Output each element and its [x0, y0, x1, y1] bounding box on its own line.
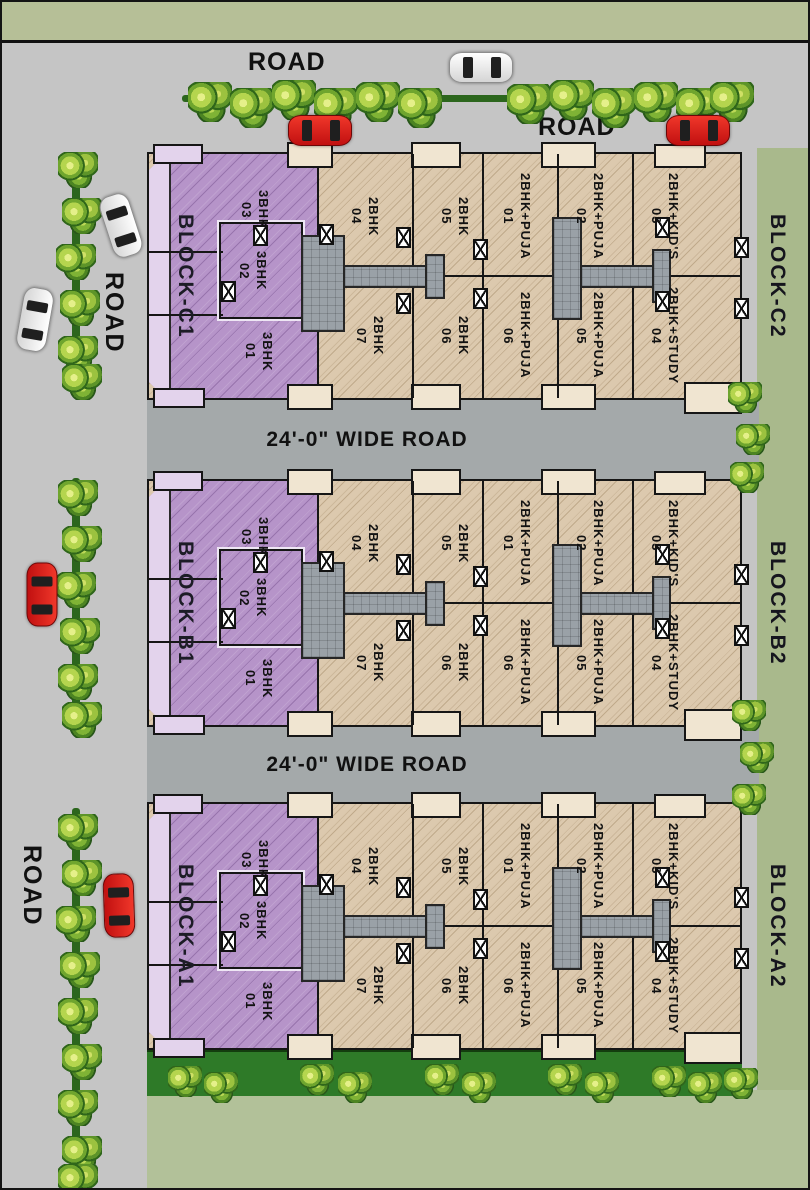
block-left-label: BLOCK-B1 [173, 525, 197, 681]
purple-edge-strip [149, 804, 171, 1048]
tree-icon [338, 1072, 372, 1103]
unit-number: 04 [347, 488, 364, 598]
tree-icon [188, 82, 232, 122]
unit-number: 05 [437, 811, 454, 921]
unit-number: 04 [647, 608, 664, 718]
white-car-icon [96, 190, 145, 260]
unit-label: 2BHK 05 [437, 811, 471, 921]
lift-icon [734, 948, 749, 969]
lift-icon [734, 625, 749, 646]
lift-icon [396, 293, 411, 314]
unit-number: 01 [499, 488, 516, 598]
unit-type: 2BHK+PUJA [589, 161, 606, 271]
red-car-icon [27, 563, 58, 627]
unit-number: 04 [347, 811, 364, 921]
unit-number: 07 [352, 931, 369, 1041]
unit-number: 01 [241, 310, 258, 393]
lift-icon [221, 608, 236, 629]
unit-label: 2BHK+PUJA 06 [499, 931, 533, 1041]
tree-icon [724, 1068, 758, 1099]
unit-label: 2BHK 05 [437, 488, 471, 598]
unit-type: 2BHK [369, 281, 386, 391]
tree-icon [356, 82, 400, 122]
unit-label: 2BHK+PUJA 02 [572, 488, 606, 598]
tree-icon [300, 1064, 334, 1095]
unit-label: 2BHK+STUDY 04 [647, 931, 681, 1041]
unit-type: 2BHK+KID'S [664, 161, 681, 271]
tree-icon [56, 572, 96, 608]
tree-icon [58, 664, 98, 700]
purple-block: BLOCK-C1 3BHK 03 3BHK 02 3BHK 01 [149, 154, 319, 398]
lift-icon [396, 877, 411, 898]
lift-icon [221, 931, 236, 952]
unit-number: 01 [499, 811, 516, 921]
unit-label: 2BHK+PUJA 05 [572, 931, 606, 1041]
tree-icon [740, 742, 774, 773]
unit-number: 02 [235, 227, 252, 315]
block-left-label: BLOCK-C1 [173, 198, 197, 354]
unit-number: 06 [499, 281, 516, 391]
tree-icon [230, 88, 274, 128]
tree-icon [548, 1064, 582, 1095]
white-car-icon [14, 285, 56, 353]
balcony [684, 1032, 742, 1064]
tree-icon [507, 84, 551, 124]
tree-icon [58, 480, 98, 516]
bottom-green-area [147, 1090, 810, 1190]
purple-block: BLOCK-B1 3BHK 03 3BHK 02 3BHK 01 [149, 481, 319, 725]
lift-icon [319, 224, 334, 245]
unit-label: 2BHK+PUJA 01 [499, 161, 533, 271]
lift-icon [473, 615, 488, 636]
wide-road-upper: 24'-0" WIDE ROAD [147, 400, 759, 479]
tree-icon [56, 244, 96, 280]
tree-icon [168, 1066, 202, 1097]
block-row: BLOCK-B1 3BHK 03 3BHK 02 3BHK 01 [147, 479, 810, 727]
tree-icon [462, 1072, 496, 1103]
unit-label: 3BHK 01 [241, 960, 275, 1043]
unit-number: 02 [572, 161, 589, 271]
unit-type: 2BHK+PUJA [516, 811, 533, 921]
tree-icon [62, 702, 102, 738]
unit-label: 2BHK+KID'S 03 [647, 161, 681, 271]
tree-icon [62, 198, 102, 234]
unit-number: 04 [347, 161, 364, 271]
road-label-top-1: ROAD [248, 48, 326, 77]
balcony [153, 1038, 205, 1058]
unit-label: 2BHK 06 [437, 608, 471, 718]
unit-number: 05 [572, 931, 589, 1041]
unit-type: 2BHK [454, 161, 471, 271]
building-footprint: BLOCK-A1 3BHK 03 3BHK 02 3BHK 01 [147, 802, 742, 1050]
site-plan: 24'-0" WIDE ROAD 24'-0" WIDE ROAD ROAD R… [0, 0, 810, 1190]
tree-icon [60, 290, 100, 326]
tree-icon [58, 998, 98, 1034]
lift-icon [473, 288, 488, 309]
block-right-label: BLOCK-C2 [765, 182, 789, 370]
balcony [153, 471, 203, 491]
lift-icon [734, 298, 749, 319]
tree-icon [62, 860, 102, 896]
unit-type: 2BHK+STUDY [664, 281, 681, 391]
purple-edge-strip [149, 481, 171, 725]
unit-type: 2BHK [369, 931, 386, 1041]
tree-icon [56, 906, 96, 942]
unit-type: 3BHK [258, 637, 275, 720]
unit-label: 2BHK+PUJA 06 [499, 281, 533, 391]
stair-core [301, 885, 345, 983]
lift-icon [319, 551, 334, 572]
unit-type: 2BHK [454, 931, 471, 1041]
lift-icon [473, 938, 488, 959]
unit-type: 2BHK [454, 608, 471, 718]
unit-number: 06 [499, 931, 516, 1041]
block-left-label: BLOCK-A1 [173, 848, 197, 1004]
unit-number: 01 [241, 960, 258, 1043]
tree-icon [62, 1044, 102, 1080]
block-row: BLOCK-A1 3BHK 03 3BHK 02 3BHK 01 [147, 802, 810, 1050]
tree-icon [58, 152, 98, 188]
tree-icon [732, 700, 766, 731]
unit-number: 03 [647, 161, 664, 271]
unit-number: 07 [352, 281, 369, 391]
unit-label: 2BHK+PUJA 05 [572, 608, 606, 718]
unit-type: 2BHK+PUJA [589, 281, 606, 391]
unit-number: 03 [647, 488, 664, 598]
stair-core [301, 235, 345, 333]
wide-road-lower: 24'-0" WIDE ROAD [147, 727, 759, 802]
lift-icon [319, 874, 334, 895]
road-label-left-1: ROAD [99, 272, 128, 362]
lift-icon [473, 889, 488, 910]
tree-icon [60, 618, 100, 654]
tree-icon [652, 1066, 686, 1097]
wide-road-label: 24'-0" WIDE ROAD [217, 753, 517, 777]
lift-icon [473, 239, 488, 260]
unit-label: 2BHK+KID'S 03 [647, 811, 681, 921]
unit-number: 02 [572, 488, 589, 598]
balcony [287, 711, 333, 737]
unit-type: 2BHK [364, 811, 381, 921]
unit-label: 2BHK 06 [437, 281, 471, 391]
tree-icon [736, 424, 770, 455]
unit-number: 02 [235, 554, 252, 642]
stair-core [301, 562, 345, 660]
unit-number: 04 [647, 281, 664, 391]
lift-icon [253, 552, 268, 573]
lift-icon [396, 620, 411, 641]
unit-label: 2BHK+STUDY 04 [647, 281, 681, 391]
lift-icon [396, 943, 411, 964]
unit-number: 03 [647, 811, 664, 921]
unit-label: 2BHK 07 [352, 608, 386, 718]
unit-label: 2BHK+PUJA 05 [572, 281, 606, 391]
unit-label: 3BHK 01 [241, 310, 275, 393]
lift-icon [734, 887, 749, 908]
tree-icon [272, 80, 316, 120]
lift-icon [396, 227, 411, 248]
tree-icon [730, 462, 764, 493]
tree-icon [398, 88, 442, 128]
unit-number: 01 [499, 161, 516, 271]
unit-type: 2BHK+PUJA [589, 931, 606, 1041]
balcony [153, 144, 203, 164]
unit-label: 2BHK+PUJA 06 [499, 608, 533, 718]
lift-icon [253, 875, 268, 896]
unit-label: 2BHK+PUJA 02 [572, 161, 606, 271]
tree-icon [62, 364, 102, 400]
unit-label: 3BHK 01 [241, 637, 275, 720]
unit-type: 2BHK [364, 161, 381, 271]
balcony [153, 794, 203, 814]
unit-type: 3BHK [258, 310, 275, 393]
unit-number: 05 [437, 161, 454, 271]
tree-icon [688, 1072, 722, 1103]
unit-label: 2BHK+PUJA 02 [572, 811, 606, 921]
tree-icon [62, 526, 102, 562]
tree-icon [728, 382, 762, 413]
unit-type: 2BHK+PUJA [516, 488, 533, 598]
tree-icon [585, 1072, 619, 1103]
unit-number: 06 [437, 931, 454, 1041]
unit-type: 2BHK [454, 811, 471, 921]
tree-icon [58, 1090, 98, 1126]
unit-label: 2BHK 07 [352, 931, 386, 1041]
unit-type: 2BHK+PUJA [589, 811, 606, 921]
unit-label: 2BHK 04 [347, 488, 381, 598]
unit-type: 2BHK+KID'S [664, 811, 681, 921]
unit-number: 06 [437, 608, 454, 718]
tree-icon [60, 952, 100, 988]
unit-number: 01 [241, 637, 258, 720]
unit-type: 2BHK+PUJA [516, 608, 533, 718]
unit-number: 02 [235, 877, 252, 965]
balcony [287, 792, 333, 818]
balcony [287, 1034, 333, 1060]
tree-icon [732, 784, 766, 815]
lift-icon [734, 564, 749, 585]
balcony [153, 388, 205, 408]
unit-number: 05 [572, 281, 589, 391]
unit-type: 2BHK+STUDY [664, 608, 681, 718]
red-car-icon [102, 873, 135, 938]
unit-label: 2BHK 04 [347, 811, 381, 921]
unit-label: 2BHK 05 [437, 161, 471, 271]
block-right-label: BLOCK-B2 [765, 509, 789, 697]
purple-edge-strip [149, 154, 171, 398]
lift-icon [473, 566, 488, 587]
unit-label: 2BHK+KID'S 03 [647, 488, 681, 598]
building-footprint: BLOCK-B1 3BHK 03 3BHK 02 3BHK 01 [147, 479, 742, 727]
unit-type: 2BHK+PUJA [589, 608, 606, 718]
unit-label: 2BHK 06 [437, 931, 471, 1041]
unit-type: 2BHK [369, 608, 386, 718]
block-right-label: BLOCK-A2 [765, 832, 789, 1020]
unit-type: 2BHK+STUDY [664, 931, 681, 1041]
unit-label: 2BHK+STUDY 04 [647, 608, 681, 718]
unit-number: 06 [499, 608, 516, 718]
unit-number: 06 [437, 281, 454, 391]
red-car-icon [666, 115, 730, 146]
block-row: BLOCK-C1 3BHK 03 3BHK 02 3BHK 01 [147, 152, 810, 400]
purple-block: BLOCK-A1 3BHK 03 3BHK 02 3BHK 01 [149, 804, 319, 1048]
unit-type: 2BHK [454, 281, 471, 391]
balcony [287, 469, 333, 495]
unit-type: 2BHK+PUJA [589, 488, 606, 598]
unit-type: 2BHK [454, 488, 471, 598]
road-label-left-2: ROAD [17, 845, 46, 935]
unit-type: 2BHK+KID'S [664, 488, 681, 598]
tree-icon [592, 88, 636, 128]
tree-icon [204, 1072, 238, 1103]
tree-icon [425, 1064, 459, 1095]
balcony [287, 384, 333, 410]
unit-number: 05 [437, 488, 454, 598]
balcony [153, 715, 205, 735]
unit-label: 2BHK 07 [352, 281, 386, 391]
unit-label: 2BHK 04 [347, 161, 381, 271]
tree-icon [58, 1164, 98, 1190]
white-car-icon [449, 52, 513, 83]
unit-number: 04 [647, 931, 664, 1041]
unit-number: 02 [572, 811, 589, 921]
tree-icon [550, 80, 594, 120]
top-green-strip [2, 2, 808, 43]
building-footprint: BLOCK-C1 3BHK 03 3BHK 02 3BHK 01 [147, 152, 742, 400]
unit-type: 2BHK+PUJA [516, 931, 533, 1041]
lift-icon [396, 554, 411, 575]
unit-label: 2BHK+PUJA 01 [499, 488, 533, 598]
unit-number: 07 [352, 608, 369, 718]
unit-type: 2BHK [364, 488, 381, 598]
unit-number: 05 [572, 608, 589, 718]
lift-icon [734, 237, 749, 258]
unit-label: 2BHK+PUJA 01 [499, 811, 533, 921]
tree-icon [58, 814, 98, 850]
red-car-icon [288, 115, 352, 146]
wide-road-label: 24'-0" WIDE ROAD [217, 428, 517, 452]
unit-type: 2BHK+PUJA [516, 161, 533, 271]
lift-icon [221, 281, 236, 302]
lift-icon [253, 225, 268, 246]
unit-type: 2BHK+PUJA [516, 281, 533, 391]
unit-type: 3BHK [258, 960, 275, 1043]
